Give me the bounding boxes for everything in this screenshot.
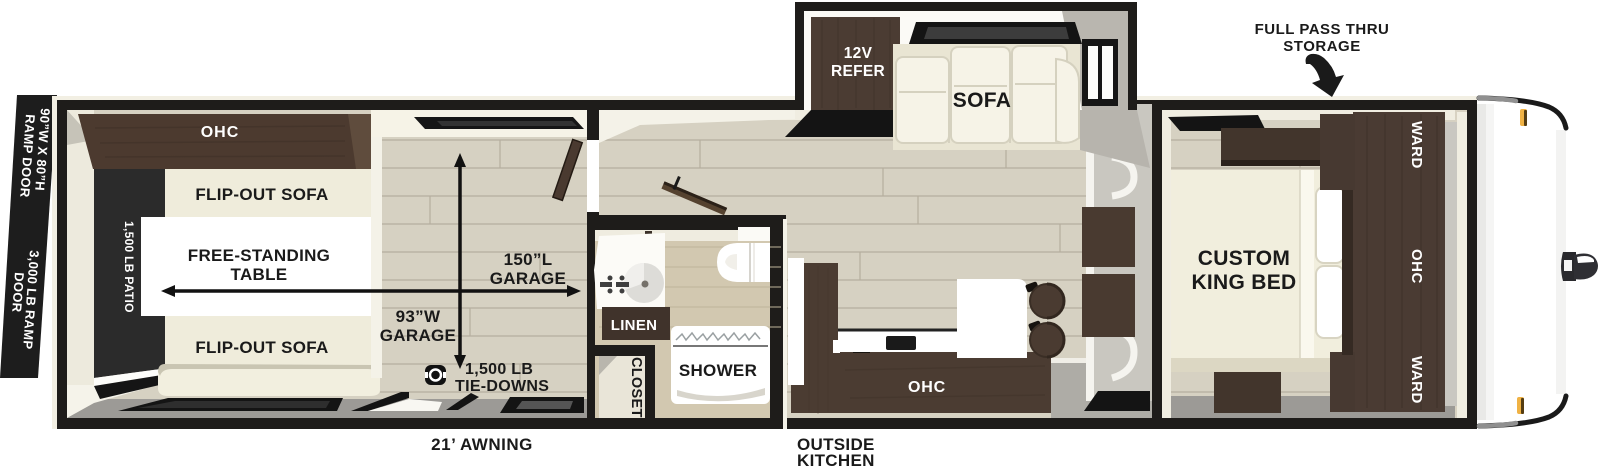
svg-text:OHC: OHC	[908, 379, 946, 396]
svg-text:SHOWER: SHOWER	[679, 361, 757, 380]
svg-text:TIE-DOWNS: TIE-DOWNS	[455, 378, 549, 395]
svg-text:GARAGE: GARAGE	[380, 326, 456, 345]
svg-text:OHC: OHC	[201, 124, 240, 141]
svg-text:GARAGE: GARAGE	[490, 269, 566, 288]
svg-text:LINEN: LINEN	[611, 317, 658, 334]
svg-text:KING BED: KING BED	[1191, 271, 1296, 294]
svg-text:WARD: WARD	[1408, 356, 1425, 404]
svg-text:1,500 LB PATIO: 1,500 LB PATIO	[122, 221, 136, 313]
svg-text:CLOSET: CLOSET	[628, 357, 644, 418]
svg-text:FREE-STANDING: FREE-STANDING	[188, 246, 330, 265]
svg-text:CUSTOM: CUSTOM	[1198, 247, 1290, 270]
svg-text:WARD: WARD	[1408, 121, 1425, 169]
svg-text:STORAGE: STORAGE	[1283, 38, 1360, 55]
svg-text:DOOR: DOOR	[9, 272, 27, 313]
svg-text:TABLE: TABLE	[231, 265, 288, 284]
svg-text:SOFA: SOFA	[953, 89, 1011, 112]
svg-text:1,500 LB: 1,500 LB	[465, 361, 533, 378]
svg-text:FULL PASS THRU: FULL PASS THRU	[1255, 21, 1390, 38]
svg-text:12V: 12V	[844, 45, 873, 62]
svg-text:FLIP-OUT SOFA: FLIP-OUT SOFA	[195, 185, 328, 204]
svg-text:21’ AWNING: 21’ AWNING	[431, 435, 533, 454]
svg-text:93”W: 93”W	[396, 307, 441, 326]
svg-text:REFER: REFER	[831, 63, 885, 80]
svg-text:150”L: 150”L	[504, 250, 553, 269]
svg-text:OHC: OHC	[1408, 249, 1425, 284]
svg-text:KITCHEN: KITCHEN	[797, 451, 875, 466]
svg-text:FLIP-OUT SOFA: FLIP-OUT SOFA	[195, 338, 328, 357]
